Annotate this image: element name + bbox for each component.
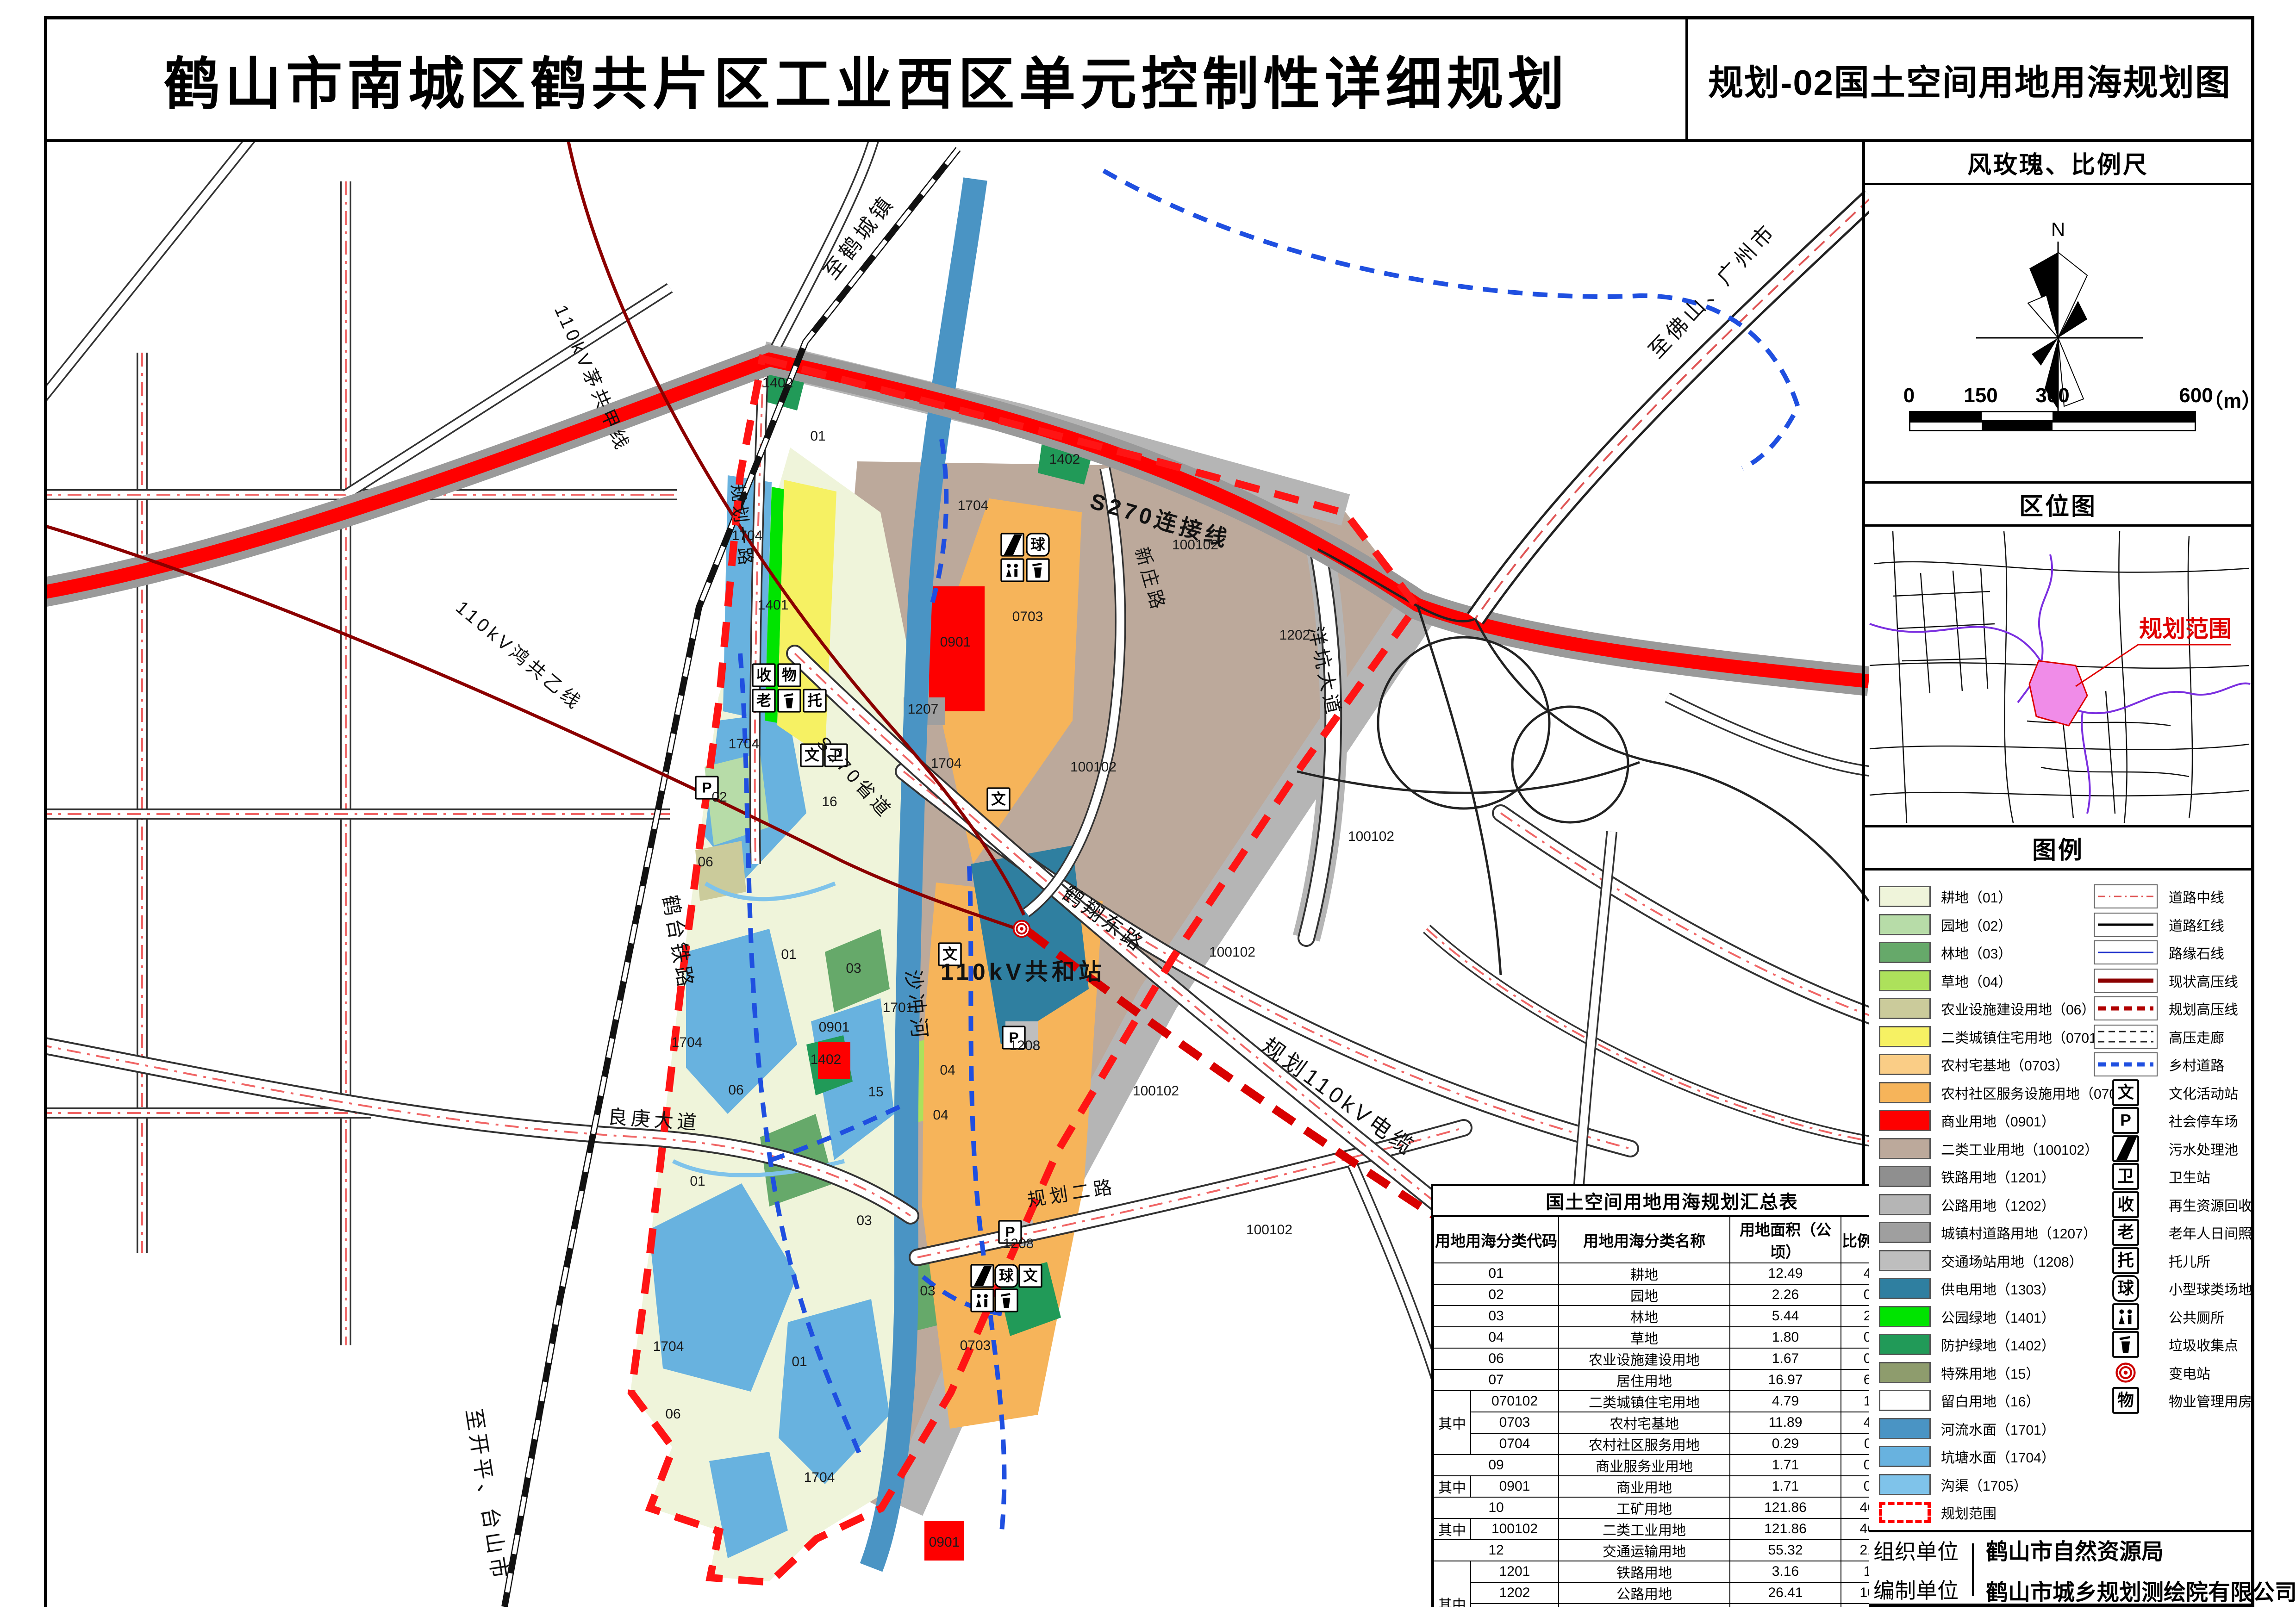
svg-text:P: P (2120, 1111, 2131, 1130)
legend-swatch (1879, 1334, 1931, 1355)
page-title: 鹤山市南城区鹤共片区工业西区单元控制性详细规划 (164, 38, 1569, 120)
legend-label: 规划范围 (1941, 1502, 1997, 1523)
plan-sheet: 鹤山市南城区鹤共片区工业西区单元控制性详细规划 规划-02国土空间用地用海规划图 (0, 0, 2296, 1623)
legend-swatch (1879, 942, 1931, 963)
legend-item: 乡村道路 (2093, 1051, 2251, 1079)
parcel-code-label: 1402 (762, 375, 793, 391)
map-trash-icon (995, 1289, 1017, 1312)
legend-label: 公路用地（1202） (1941, 1194, 2055, 1215)
code-cell: 0901 (1471, 1476, 1559, 1497)
parcel-code-label: 02 (711, 790, 727, 805)
location-map-graphic: 规划范围 (1865, 527, 2251, 825)
svg-text:球: 球 (2117, 1279, 2134, 1298)
pct-cell: 0.66 (1841, 1476, 1869, 1497)
parcel-code-label: 1208 (1010, 1038, 1041, 1053)
legend-swatch (1879, 1250, 1931, 1271)
area-cell: 11.89 (1730, 1412, 1841, 1433)
parcel-code-label: 1704 (804, 1470, 835, 1485)
parcel-code-label: 100102 (1070, 759, 1117, 775)
legend-item: 沟渠（1705） (1879, 1471, 2139, 1499)
legend-swatch (1879, 1194, 1931, 1215)
legend-label: 交通场站用地（1208） (1941, 1250, 2083, 1271)
header-title-cell: 鹤山市南城区鹤共片区工业西区单元控制性详细规划 (47, 19, 1688, 139)
parcel-code-label: 0703 (1012, 609, 1043, 624)
scale-ticks: 0150300600 (1909, 384, 2196, 407)
name-cell: 商业用地 (1559, 1476, 1730, 1497)
legend-label: 耕地（01） (1941, 886, 2012, 907)
legend-swatch (1879, 1082, 1931, 1103)
area-cell: 3.16 (1730, 1561, 1841, 1582)
svg-text:物: 物 (782, 666, 797, 683)
icon-shou-symbol: 收 (2093, 1190, 2159, 1219)
name-cell: 铁路用地 (1559, 1561, 1730, 1582)
area-cell: 2.26 (1730, 1284, 1841, 1306)
pct-cell: 1.84 (1841, 1391, 1869, 1412)
legend-item: 老老年人日间照料中心 (2093, 1219, 2251, 1247)
legend-item: 规划高压线 (2093, 995, 2251, 1023)
parcel-code-label: 100102 (1209, 945, 1255, 960)
code-cell: 07 (1434, 1369, 1559, 1391)
table-title: 国土空间用地用海规划汇总表 (1433, 1186, 1869, 1216)
legend-label: 文化活动站 (2169, 1082, 2238, 1103)
parcel-code-label: 01 (810, 429, 825, 444)
name-cell: 交通运输用地 (1559, 1540, 1730, 1561)
legend-item: 规划范围 (1879, 1499, 2139, 1527)
legend-item: 托托儿所 (2093, 1247, 2251, 1275)
parcel-code-label: 0901 (929, 1535, 960, 1550)
legend-item: 变电站 (2093, 1359, 2251, 1387)
legend-label: 卫生站 (2169, 1166, 2210, 1187)
legend-label: 城镇村道路用地（1207） (1941, 1222, 2097, 1243)
icon-sewage-symbol (2093, 1134, 2159, 1163)
windrose-section-header: 风玫瑰、比例尺 (1865, 142, 2251, 185)
parcel-code-label: 04 (933, 1107, 948, 1123)
legend-item: 卫卫生站 (2093, 1163, 2251, 1191)
legend-item: 路缘石线 (2093, 939, 2251, 967)
legend-swatch (1879, 1474, 1931, 1495)
parcel-code-label: 1704 (653, 1339, 684, 1354)
svg-text:收: 收 (2117, 1195, 2134, 1213)
code-cell: 100102 (1471, 1518, 1559, 1540)
code-cell: 09 (1434, 1455, 1559, 1476)
legend-panel: 耕地（01）园地（02）林地（03）草地（04）农业设施建设用地（06）二类城镇… (1865, 871, 2251, 1532)
sheet-frame: 鹤山市南城区鹤共片区工业西区单元控制性详细规划 规划-02国土空间用地用海规划图 (44, 16, 2254, 1607)
svg-text:文: 文 (2117, 1083, 2134, 1101)
code-cell: 1201 (1471, 1561, 1559, 1582)
landuse-summary-table: 国土空间用地用海规划汇总表 用地用海分类代码 用地用海分类名称 用地面积（公顷）… (1431, 1184, 1869, 1607)
legend-label: 园地（02） (1941, 914, 2012, 935)
legend-swatch (1879, 886, 1931, 907)
line-red-symbol (2093, 911, 2159, 939)
pct-cell: 2.09 (1841, 1306, 1869, 1327)
pct-cell: 9.66 (1841, 1604, 1869, 1607)
table-row: 07居住用地16.976.52 (1434, 1369, 1869, 1391)
legend-swatch (1879, 1138, 1931, 1159)
table-row: 0703农村宅基地11.894.57 (1434, 1412, 1869, 1433)
svg-text:托: 托 (807, 692, 822, 709)
pct-cell: 0.64 (1841, 1348, 1869, 1369)
area-cell: 121.86 (1730, 1497, 1841, 1518)
location-map-panel: 规划范围 (1865, 527, 2251, 827)
map-lao-icon: 老 (753, 690, 775, 712)
name-cell: 草地 (1559, 1327, 1730, 1348)
col-area: 用地面积（公顷） (1730, 1217, 1841, 1263)
parcel-code-label: 1207 (908, 702, 939, 717)
parcel-code-label: 1704 (672, 1035, 703, 1050)
parcel-code-label: 0901 (940, 634, 971, 650)
legend-swatch (1879, 914, 1931, 935)
sidebar: 风玫瑰、比例尺 N 0150300600 （m） (1862, 142, 2251, 1607)
pct-cell: 4.80 (1841, 1263, 1869, 1284)
parcel-code-label: 16 (822, 794, 837, 809)
map-trash-icon (1027, 559, 1049, 581)
table-row: 0704农村社区服务用地0.290.11 (1434, 1433, 1869, 1455)
parcel-code-label: 01 (792, 1354, 807, 1369)
svg-text:老: 老 (2117, 1223, 2134, 1242)
main-map: 球文收物老托文卫PP文P球文 1402011704140109011704070… (47, 142, 1869, 1607)
code-cell: 1207 (1471, 1604, 1559, 1607)
table-row: 12交通运输用地55.3221.27 (1434, 1540, 1869, 1561)
icon-wu-symbol: 物 (2093, 1386, 2159, 1415)
col-name: 用地用海分类名称 (1559, 1217, 1730, 1263)
legend-label: 农业设施建设用地（06） (1941, 998, 2095, 1019)
header: 鹤山市南城区鹤共片区工业西区单元控制性详细规划 规划-02国土空间用地用海规划图 (47, 19, 2251, 142)
legend-swatch (1879, 1026, 1931, 1047)
legend-swatch (1879, 970, 1931, 991)
header-maptitle-cell: 规划-02国土空间用地用海规划图 (1688, 19, 2251, 139)
map-label: 110kV共和站 (941, 959, 1105, 985)
parcel-code-label: 100102 (1246, 1222, 1292, 1237)
parcel-code-label: 15 (868, 1084, 883, 1100)
legend-label: 现状高压线 (2169, 970, 2238, 991)
scale-tick: 0 (1903, 384, 1915, 407)
legend-label: 变电站 (2169, 1362, 2210, 1383)
windrose-panel: N 0150300600 （m） (1865, 185, 2251, 484)
map-sub-icon (1014, 921, 1030, 937)
icon-wen-symbol: 文 (2093, 1078, 2159, 1107)
legend-label: 托儿所 (2169, 1250, 2210, 1271)
svg-text:物: 物 (2117, 1391, 2134, 1410)
pct-cell: 46.84 (1841, 1497, 1869, 1518)
area-cell: 16.97 (1730, 1369, 1841, 1391)
area-cell: 121.86 (1730, 1518, 1841, 1540)
name-cell: 居住用地 (1559, 1369, 1730, 1391)
area-cell: 4.79 (1730, 1391, 1841, 1412)
col-pct: 比例（%） (1841, 1217, 1869, 1263)
pct-cell: 0.66 (1841, 1455, 1869, 1476)
map-sheet-title: 规划-02国土空间用地用海规划图 (1708, 54, 2231, 105)
legend-label: 道路中线 (2169, 886, 2224, 907)
table-row: 06农业设施建设用地1.670.64 (1434, 1348, 1869, 1369)
area-cell: 25.12 (1730, 1604, 1841, 1607)
pct-cell: 21.27 (1841, 1540, 1869, 1561)
code-cell: 0704 (1471, 1433, 1559, 1455)
line-corridor-symbol (2093, 1023, 2159, 1051)
parcel-code-label: 1402 (811, 1052, 842, 1067)
code-cell: 0703 (1471, 1412, 1559, 1433)
legend-label: 老年人日间照料中心 (2169, 1222, 2251, 1243)
org-label-1: 组织单位 (1873, 1535, 1972, 1566)
map-qiu-icon: 球 (995, 1265, 1017, 1287)
parcel-code-label: 100102 (1348, 829, 1394, 844)
legend-item: 污水处理池 (2093, 1135, 2251, 1163)
location-range-label: 规划范围 (2139, 616, 2232, 642)
map-shou-icon: 收 (753, 664, 775, 686)
code-cell: 070102 (1471, 1391, 1559, 1412)
map-label: 至开平、台山市 (462, 1407, 512, 1583)
table-row: 09商业服务业用地1.710.66 (1434, 1455, 1869, 1476)
legend-item: 球小型球类场地 (2093, 1275, 2251, 1303)
legend-label: 供电用地（1303） (1941, 1278, 2055, 1299)
legend-label: 垃圾收集点 (2169, 1334, 2238, 1355)
svg-text:文: 文 (991, 790, 1006, 807)
pct-cell: 0.11 (1841, 1433, 1869, 1455)
legend-label: 林地（03） (1941, 942, 2012, 963)
legend-swatch (1879, 1502, 1931, 1523)
qizhong-cell: 其中 (1434, 1391, 1471, 1455)
windrose-title: 风玫瑰、比例尺 (1967, 145, 2149, 180)
icon-p-symbol: P (2093, 1106, 2159, 1135)
table-row: 04草地1.800.69 (1434, 1327, 1869, 1348)
north-label: N (2051, 218, 2065, 240)
icon-trash-symbol (2093, 1330, 2159, 1359)
parcel-code-label: 01 (781, 947, 796, 962)
table-row: 其中100102二类工业用地121.8646.84 (1434, 1518, 1869, 1540)
map-sewage-icon (1001, 534, 1023, 556)
map-wc-icon (971, 1289, 993, 1312)
legend-label: 物业管理用房 (2169, 1390, 2251, 1411)
code-cell: 04 (1434, 1327, 1559, 1348)
name-cell: 工矿用地 (1559, 1497, 1730, 1518)
legend-swatch (1879, 1278, 1931, 1299)
legend-swatch (1879, 1418, 1931, 1439)
legend-swatch (1879, 998, 1931, 1019)
legend-label: 农村宅基地（0703） (1941, 1054, 2069, 1075)
parcel-code-label: 04 (940, 1063, 955, 1078)
icon-sub-symbol (2093, 1358, 2159, 1387)
legend-label: 社会停车场 (2169, 1110, 2238, 1131)
name-cell: 二类城镇住宅用地 (1559, 1391, 1730, 1412)
parcel-code-label: 1704 (958, 498, 989, 513)
parcel-code-label: 06 (665, 1406, 680, 1422)
pct-cell: 1.21 (1841, 1561, 1869, 1582)
map-qiu-icon: 球 (1027, 534, 1049, 556)
pct-cell: 46.84 (1841, 1518, 1869, 1540)
legend-item: 公共厕所 (2093, 1303, 2251, 1331)
legend-label: 坑塘水面（1704） (1941, 1446, 2055, 1467)
legend-label: 路缘石线 (2169, 942, 2224, 963)
parcel-code-label: 01 (690, 1174, 705, 1189)
parcel-code-label: 03 (846, 961, 861, 976)
area-cell: 0.29 (1730, 1433, 1841, 1455)
legend-label: 再生资源回收点 (2169, 1194, 2251, 1215)
line-hv-plan-symbol (2093, 995, 2159, 1022)
legend-label: 沟渠（1705） (1941, 1474, 2028, 1495)
table-row: 1202公路用地26.4110.15 (1434, 1582, 1869, 1604)
legend-swatch (1879, 1306, 1931, 1327)
area-cell: 55.32 (1730, 1540, 1841, 1561)
org-values: 鹤山市自然资源局 鹤山市城乡规划测绘院有限公司 (1974, 1533, 2296, 1606)
col-code: 用地用海分类代码 (1434, 1217, 1559, 1263)
parcel-code-label: 1208 (1003, 1236, 1034, 1251)
svg-text:球: 球 (999, 1267, 1014, 1284)
legend-label: 小型球类场地 (2169, 1278, 2251, 1299)
code-cell: 03 (1434, 1306, 1559, 1327)
area-cell: 1.71 (1730, 1476, 1841, 1497)
legend-title: 图例 (2032, 831, 2084, 865)
parcel-code-label: 0901 (819, 1020, 850, 1035)
legend-item: 道路红线 (2093, 911, 2251, 939)
line-curb-symbol (2093, 939, 2159, 966)
parcel-code-label: 1704 (729, 736, 760, 752)
legend-label: 高压走廊 (2169, 1026, 2224, 1047)
name-cell: 园地 (1559, 1284, 1730, 1306)
legend-label: 铁路用地（1201） (1941, 1166, 2055, 1187)
map-label: 110kV鸿共乙线 (452, 597, 586, 715)
pct-cell: 10.15 (1841, 1582, 1869, 1604)
scale-bar: 0150300600 （m） (1909, 384, 2210, 440)
svg-text:卫: 卫 (2117, 1167, 2134, 1186)
table-row: 01耕地12.494.80 (1434, 1263, 1869, 1284)
name-cell: 城镇村道路用地 (1559, 1604, 1730, 1607)
legend-label: 河流水面（1701） (1941, 1418, 2055, 1439)
parcel-code-label: 1704 (931, 756, 962, 771)
table-row: 其中1201铁路用地3.161.21 (1434, 1561, 1869, 1582)
name-cell: 公路用地 (1559, 1582, 1730, 1604)
code-cell: 02 (1434, 1284, 1559, 1306)
legend-label: 规划高压线 (2169, 998, 2238, 1019)
legend-item: P社会停车场 (2093, 1107, 2251, 1135)
code-cell: 01 (1434, 1263, 1559, 1284)
pct-cell: 6.52 (1841, 1369, 1869, 1391)
name-cell: 耕地 (1559, 1263, 1730, 1284)
legend-swatch (1879, 1166, 1931, 1187)
parcel-code-label: 03 (856, 1213, 872, 1228)
qizhong-cell: 其中 (1434, 1561, 1471, 1607)
org-value-1: 鹤山市自然资源局 (1986, 1533, 2296, 1566)
svg-text:球: 球 (1030, 536, 1045, 553)
name-cell: 农村宅基地 (1559, 1412, 1730, 1433)
legend-section-header: 图例 (1865, 827, 2251, 871)
map-wu-icon: 物 (778, 664, 800, 686)
pct-cell: 0.69 (1841, 1327, 1869, 1348)
parcel-code-label: 03 (920, 1283, 935, 1299)
map-trash-icon (778, 690, 800, 712)
parcel-code-label: 100102 (1133, 1083, 1179, 1099)
area-cell: 12.49 (1730, 1263, 1841, 1284)
legend-item: 垃圾收集点 (2093, 1331, 2251, 1359)
legend-swatch (1879, 1222, 1931, 1243)
pct-cell: 4.57 (1841, 1412, 1869, 1433)
legend-label: 商业用地（0901） (1941, 1110, 2055, 1131)
code-cell: 12 (1434, 1540, 1559, 1561)
qizhong-cell: 其中 (1434, 1518, 1471, 1540)
map-wen-icon: 文 (987, 788, 1010, 810)
location-title: 区位图 (2019, 487, 2097, 522)
org-label-2: 编制单位 (1873, 1574, 1972, 1604)
table-row: 其中070102二类城镇住宅用地4.791.84 (1434, 1391, 1869, 1412)
legend-label: 公共厕所 (2169, 1306, 2224, 1327)
legend-label: 污水处理池 (2169, 1138, 2238, 1159)
legend-item: 坑塘水面（1704） (1879, 1443, 2139, 1471)
svg-text:P: P (702, 779, 711, 796)
legend-col-symbols: 道路中线道路红线路缘石线现状高压线规划高压线高压走廊乡村道路文文化活动站P社会停… (2093, 883, 2251, 1415)
legend-item: 河流水面（1701） (1879, 1415, 2139, 1443)
icon-wc-symbol (2093, 1302, 2159, 1331)
name-cell: 林地 (1559, 1306, 1730, 1327)
legend-swatch (1879, 1054, 1931, 1075)
area-cell: 5.44 (1730, 1306, 1841, 1327)
legend-label: 留白用地（16） (1941, 1390, 2040, 1411)
legend-item: 收再生资源回收点 (2093, 1191, 2251, 1219)
legend-swatch (1879, 1362, 1931, 1383)
org-labels: 组织单位 编制单位 (1865, 1543, 1974, 1596)
legend-swatch (1879, 1446, 1931, 1467)
qizhong-cell: 其中 (1434, 1476, 1471, 1497)
line-village-symbol (2093, 1051, 2159, 1078)
area-cell: 1.71 (1730, 1455, 1841, 1476)
map-tuo-icon: 托 (804, 690, 826, 712)
legend-label: 乡村道路 (2169, 1054, 2224, 1075)
pct-cell: 0.87 (1841, 1284, 1869, 1306)
svg-text:文: 文 (1023, 1267, 1038, 1284)
icon-lao-symbol: 老 (2093, 1218, 2159, 1247)
name-cell: 农业设施建设用地 (1559, 1348, 1730, 1369)
legend-label: 草地（04） (1941, 970, 2012, 991)
icon-qiu-symbol: 球 (2093, 1274, 2159, 1303)
legend-swatch (1879, 1110, 1931, 1131)
legend-label: 防护绿地（1402） (1941, 1334, 2055, 1355)
legend-swatch (1879, 1390, 1931, 1411)
legend-label: 特殊用地（15） (1941, 1362, 2040, 1383)
area-cell: 26.41 (1730, 1582, 1841, 1604)
table-row: 10工矿用地121.8646.84 (1434, 1497, 1869, 1518)
legend-item: 现状高压线 (2093, 967, 2251, 995)
svg-text:托: 托 (2117, 1251, 2134, 1269)
map-wc-icon (1001, 559, 1023, 581)
table-header-row: 用地用海分类代码 用地用海分类名称 用地面积（公顷） 比例（%） (1434, 1217, 1869, 1263)
legend-label: 二类工业用地（100102） (1941, 1138, 2098, 1159)
legend-item: 高压走廊 (2093, 1023, 2251, 1051)
name-cell: 二类工业用地 (1559, 1518, 1730, 1540)
code-cell: 06 (1434, 1348, 1559, 1369)
legend-item: 物物业管理用房 (2093, 1387, 2251, 1415)
parcel-code-label: 06 (698, 854, 713, 870)
name-cell: 农村社区服务用地 (1559, 1433, 1730, 1455)
legend-item: 文文化活动站 (2093, 1079, 2251, 1107)
map-sewage-icon (971, 1265, 993, 1287)
scale-tick: 150 (1964, 384, 1997, 407)
code-cell: 1202 (1471, 1582, 1559, 1604)
name-cell: 商业服务业用地 (1559, 1455, 1730, 1476)
scale-tick: 300 (2035, 384, 2069, 407)
svg-text:收: 收 (756, 666, 771, 683)
parcel-code-label: 1402 (1049, 452, 1080, 467)
org-value-2: 鹤山市城乡规划测绘院有限公司 (1986, 1574, 2296, 1606)
parcel-code-label: 06 (728, 1082, 743, 1098)
icon-tuo-symbol: 托 (2093, 1246, 2159, 1275)
table-row: 02园地2.260.87 (1434, 1284, 1869, 1306)
legend-label: 道路红线 (2169, 914, 2224, 935)
line-hv-symbol (2093, 967, 2159, 995)
line-center-symbol (2093, 883, 2159, 910)
map-wen-icon: 文 (1019, 1265, 1042, 1287)
table-row: 其中0901商业用地1.710.66 (1434, 1476, 1869, 1497)
icon-wei-symbol: 卫 (2093, 1162, 2159, 1191)
legend-label: 公园绿地（1401） (1941, 1306, 2055, 1327)
parcel-code-label: 0703 (960, 1338, 991, 1353)
legend-item: 道路中线 (2093, 883, 2251, 911)
